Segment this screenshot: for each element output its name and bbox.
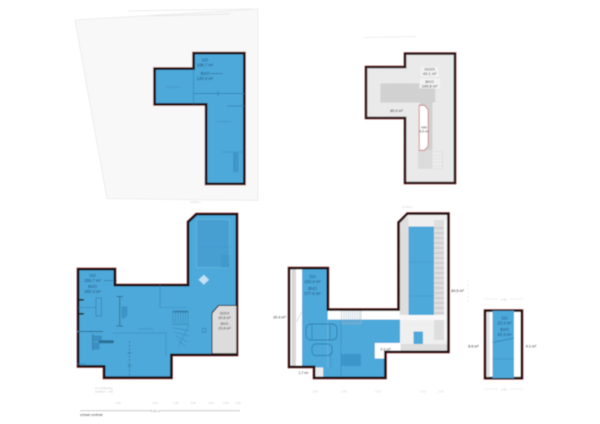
svg-text:12.95 m: 12.95 m [402,205,413,209]
svg-text:20.4 m²: 20.4 m² [273,316,286,320]
svg-text:7.00: 7.00 [235,401,241,405]
svg-text:5.00 m: 5.00 m [151,409,161,413]
svg-text:3.80: 3.80 [341,390,347,394]
svg-text:6.00: 6.00 [223,401,229,405]
svg-text:2.20: 2.20 [438,390,444,394]
svg-text:5.00: 5.00 [208,401,214,405]
svg-text:9.1 m²: 9.1 m² [526,344,537,348]
svg-text:4.00: 4.00 [190,401,196,405]
svg-text:8.6 m²: 8.6 m² [468,344,479,348]
svg-text:1.7 m²: 1.7 m² [299,371,310,375]
svg-text:106.7 m²: 106.7 m² [197,63,214,68]
svg-text:woonkamer: woonkamer [139,327,154,331]
svg-text:259.7 m²: 259.7 m² [84,278,101,283]
svg-text:145.8 m²: 145.8 m² [422,84,438,89]
svg-text:85.6 m²: 85.6 m² [390,109,404,113]
svg-text:23.3 m²: 23.3 m² [497,321,512,326]
svg-text:GOOI: GOOI [220,312,230,316]
svg-text:hobbyruimte: hobbyruimte [165,85,181,89]
svg-text:277.9 m²: 277.9 m² [304,291,321,296]
svg-text:2.00: 2.00 [152,401,158,405]
svg-text:283.3 m²: 283.3 m² [84,289,101,294]
svg-text:woonkamer: woonkamer [217,120,232,124]
svg-text:3.00: 3.00 [173,401,179,405]
svg-text:23.8 m²: 23.8 m² [218,326,231,330]
svg-text:20.8 m²: 20.8 m² [218,316,231,320]
svg-text:2.95: 2.95 [312,390,318,394]
svg-text:12.95 m: 12.95 m [190,200,201,204]
svg-text:43.1 m²: 43.1 m² [423,71,437,76]
svg-text:120.6 m²: 120.6 m² [197,76,214,81]
svg-text:BVO: BVO [221,322,229,326]
svg-text:4.25: 4.25 [375,390,381,394]
svg-text:84.5 m²: 84.5 m² [451,289,464,293]
svg-text:6.40: 6.40 [501,387,507,391]
svg-text:6.40: 6.40 [501,297,507,301]
svg-text:schaal controle: schaal controle [80,413,103,417]
svg-text:153.4 m²: 153.4 m² [304,279,321,284]
svg-text:43.3 m²: 43.3 m² [497,332,512,337]
svg-text:5.10: 5.10 [420,390,426,394]
svg-text:9.2 m²: 9.2 m² [380,348,391,352]
svg-text:5.8 m²: 5.8 m² [419,129,428,133]
svg-text:schaal 1 : 100: schaal 1 : 100 [95,390,113,394]
svg-text:1.00: 1.00 [115,401,121,405]
